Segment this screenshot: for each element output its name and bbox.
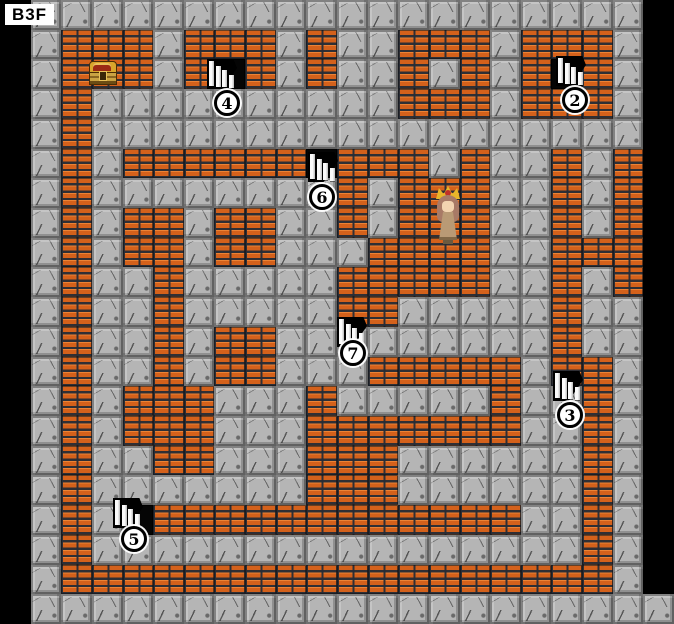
- tile-floor: [429, 297, 460, 327]
- tile-floor: [460, 446, 491, 476]
- tile-floor: [31, 505, 62, 535]
- stair-marker-number: 3: [564, 406, 575, 425]
- tile-floor: [61, 594, 92, 624]
- tile-floor: [276, 30, 307, 60]
- tile-floor: [31, 416, 62, 446]
- tile-floor: [245, 386, 276, 416]
- tile-wall: [582, 565, 613, 595]
- tile-wall: [490, 505, 521, 535]
- tile-wall: [582, 475, 613, 505]
- tile-wall: [245, 208, 276, 238]
- tile-floor: [521, 208, 552, 238]
- tile-wall: [61, 475, 92, 505]
- tile-wall: [398, 178, 429, 208]
- tile-wall: [582, 535, 613, 565]
- tile-floor: [490, 267, 521, 297]
- tile-floor: [582, 208, 613, 238]
- tile-wall: [245, 30, 276, 60]
- tile-wall: [184, 386, 215, 416]
- tile-wall: [184, 505, 215, 535]
- tile-floor: [613, 594, 644, 624]
- tile-floor: [306, 297, 337, 327]
- tile-floor: [31, 30, 62, 60]
- tile-floor: [92, 267, 123, 297]
- tile-floor: [92, 119, 123, 149]
- tile-floor: [306, 238, 337, 268]
- tile-void: [643, 535, 674, 565]
- tile-wall: [92, 30, 123, 60]
- tile-void: [0, 297, 31, 327]
- tile-floor: [337, 535, 368, 565]
- tile-floor: [31, 119, 62, 149]
- tile-floor: [582, 327, 613, 357]
- tile-floor: [521, 297, 552, 327]
- tile-wall: [582, 357, 613, 387]
- tile-wall: [123, 238, 154, 268]
- tile-floor: [153, 30, 184, 60]
- tile-floor: [31, 149, 62, 179]
- stair-marker-3[interactable]: 3: [557, 402, 583, 428]
- stairs-2-icon[interactable]: [556, 56, 586, 86]
- tile-floor: [490, 30, 521, 60]
- tile-wall: [460, 30, 491, 60]
- tile-wall: [490, 386, 521, 416]
- tile-wall: [337, 416, 368, 446]
- tile-floor: [490, 475, 521, 505]
- tile-wall: [582, 416, 613, 446]
- tile-floor: [214, 297, 245, 327]
- tile-floor: [31, 535, 62, 565]
- tile-floor: [429, 149, 460, 179]
- tile-floor: [214, 475, 245, 505]
- tile-wall: [61, 89, 92, 119]
- tile-floor: [31, 238, 62, 268]
- stair-marker-number: 4: [221, 94, 232, 113]
- tile-floor: [92, 357, 123, 387]
- tile-wall: [368, 446, 399, 476]
- tile-floor: [184, 119, 215, 149]
- tile-wall: [398, 505, 429, 535]
- tile-floor: [92, 594, 123, 624]
- tile-floor: [61, 0, 92, 30]
- tile-wall: [245, 149, 276, 179]
- tile-wall: [582, 446, 613, 476]
- stair-marker-7[interactable]: 7: [340, 340, 366, 366]
- tile-wall: [61, 357, 92, 387]
- stair-marker-4[interactable]: 4: [214, 90, 240, 116]
- tile-floor: [613, 327, 644, 357]
- tile-floor: [490, 238, 521, 268]
- tile-void: [0, 30, 31, 60]
- tile-floor: [337, 89, 368, 119]
- tile-floor: [368, 0, 399, 30]
- tile-floor: [306, 267, 337, 297]
- tile-floor: [276, 446, 307, 476]
- tile-void: [643, 327, 674, 357]
- tile-floor: [582, 0, 613, 30]
- tile-wall: [551, 208, 582, 238]
- tile-wall: [337, 178, 368, 208]
- tile-wall: [490, 357, 521, 387]
- tile-void: [0, 357, 31, 387]
- tile-floor: [184, 178, 215, 208]
- tile-wall: [123, 30, 154, 60]
- tile-wall: [368, 297, 399, 327]
- tile-wall: [153, 386, 184, 416]
- tile-floor: [368, 119, 399, 149]
- tile-wall: [398, 565, 429, 595]
- tile-wall: [276, 505, 307, 535]
- tile-wall: [551, 30, 582, 60]
- tile-floor: [184, 238, 215, 268]
- tile-floor: [214, 535, 245, 565]
- tile-wall: [337, 267, 368, 297]
- tile-floor: [521, 327, 552, 357]
- tile-floor: [460, 535, 491, 565]
- tile-floor: [460, 119, 491, 149]
- tile-floor: [276, 416, 307, 446]
- tile-void: [0, 238, 31, 268]
- tile-floor: [521, 535, 552, 565]
- tile-floor: [551, 446, 582, 476]
- tile-wall: [551, 149, 582, 179]
- tile-floor: [460, 327, 491, 357]
- tile-floor: [582, 297, 613, 327]
- tile-void: [0, 208, 31, 238]
- tile-floor: [551, 594, 582, 624]
- tile-wall: [460, 416, 491, 446]
- tile-floor: [521, 386, 552, 416]
- tile-wall: [551, 178, 582, 208]
- tile-floor: [551, 535, 582, 565]
- tile-floor: [551, 119, 582, 149]
- tile-floor: [214, 267, 245, 297]
- tile-wall: [368, 505, 399, 535]
- tile-wall: [245, 327, 276, 357]
- tile-void: [643, 297, 674, 327]
- tile-floor: [123, 119, 154, 149]
- tile-wall: [153, 327, 184, 357]
- tile-floor: [490, 535, 521, 565]
- tile-void: [0, 535, 31, 565]
- tile-void: [0, 446, 31, 476]
- tile-floor: [92, 89, 123, 119]
- tile-wall: [613, 208, 644, 238]
- tile-wall: [490, 416, 521, 446]
- tile-floor: [123, 267, 154, 297]
- tile-floor: [214, 386, 245, 416]
- tile-wall: [613, 267, 644, 297]
- tile-floor: [276, 297, 307, 327]
- stair-marker-5[interactable]: 5: [121, 526, 147, 552]
- tile-wall: [153, 357, 184, 387]
- tile-floor: [184, 0, 215, 30]
- tile-floor: [429, 475, 460, 505]
- tile-wall: [245, 565, 276, 595]
- stair-marker-2[interactable]: 2: [562, 87, 588, 113]
- tile-floor: [245, 0, 276, 30]
- tile-wall: [398, 416, 429, 446]
- tile-wall: [184, 416, 215, 446]
- tile-floor: [92, 208, 123, 238]
- tile-floor: [613, 386, 644, 416]
- treasure-chest-icon[interactable]: [89, 61, 117, 85]
- tile-wall: [337, 446, 368, 476]
- tile-floor: [460, 386, 491, 416]
- tile-wall: [61, 386, 92, 416]
- tile-floor: [31, 327, 62, 357]
- tile-wall: [521, 30, 552, 60]
- tile-void: [643, 30, 674, 60]
- tile-wall: [551, 238, 582, 268]
- tile-wall: [61, 297, 92, 327]
- tile-floor: [521, 238, 552, 268]
- tile-void: [643, 416, 674, 446]
- tile-floor: [521, 178, 552, 208]
- tile-floor: [245, 267, 276, 297]
- tile-floor: [276, 178, 307, 208]
- tile-wall: [460, 89, 491, 119]
- tile-floor: [521, 594, 552, 624]
- tile-floor: [214, 0, 245, 30]
- tile-floor: [184, 535, 215, 565]
- tile-wall: [61, 149, 92, 179]
- tile-floor: [460, 594, 491, 624]
- tile-wall: [337, 208, 368, 238]
- tile-wall: [245, 505, 276, 535]
- stairs-6-icon[interactable]: [308, 152, 338, 182]
- tile-floor: [276, 386, 307, 416]
- tile-floor: [123, 0, 154, 30]
- tile-wall: [368, 267, 399, 297]
- tile-void: [643, 59, 674, 89]
- tile-wall: [306, 30, 337, 60]
- tile-floor: [551, 0, 582, 30]
- tile-floor: [613, 297, 644, 327]
- tile-floor: [31, 59, 62, 89]
- tile-floor: [153, 89, 184, 119]
- tile-wall: [61, 416, 92, 446]
- tile-wall: [61, 267, 92, 297]
- tile-wall: [337, 475, 368, 505]
- tile-wall: [429, 30, 460, 60]
- tile-floor: [214, 446, 245, 476]
- tile-void: [643, 178, 674, 208]
- tile-wall: [368, 416, 399, 446]
- tile-floor: [368, 594, 399, 624]
- stairs-4-icon[interactable]: [207, 59, 237, 89]
- tile-floor: [276, 0, 307, 30]
- tile-floor: [490, 208, 521, 238]
- tile-void: [643, 565, 674, 595]
- tile-wall: [153, 238, 184, 268]
- tile-floor: [368, 30, 399, 60]
- tile-floor: [613, 416, 644, 446]
- tile-floor: [368, 535, 399, 565]
- tile-floor: [123, 297, 154, 327]
- tile-void: [0, 59, 31, 89]
- tile-wall: [613, 238, 644, 268]
- tile-wall: [460, 59, 491, 89]
- tile-floor: [31, 297, 62, 327]
- tile-floor: [490, 149, 521, 179]
- tile-floor: [214, 178, 245, 208]
- tile-wall: [123, 208, 154, 238]
- tile-floor: [368, 386, 399, 416]
- stair-marker-6[interactable]: 6: [309, 184, 335, 210]
- tile-wall: [429, 357, 460, 387]
- tile-floor: [398, 594, 429, 624]
- tile-wall: [276, 149, 307, 179]
- tile-void: [643, 386, 674, 416]
- tile-wall: [306, 565, 337, 595]
- tile-wall: [582, 30, 613, 60]
- tile-floor: [429, 327, 460, 357]
- tile-floor: [429, 0, 460, 30]
- tile-floor: [551, 505, 582, 535]
- tile-floor: [31, 594, 62, 624]
- tile-floor: [368, 59, 399, 89]
- tile-wall: [398, 30, 429, 60]
- tile-floor: [398, 386, 429, 416]
- tile-floor: [123, 594, 154, 624]
- tile-floor: [245, 297, 276, 327]
- tile-floor: [123, 357, 154, 387]
- tile-wall: [61, 446, 92, 476]
- stairs-5-icon[interactable]: [113, 498, 143, 528]
- tile-floor: [214, 594, 245, 624]
- tile-floor: [429, 119, 460, 149]
- tile-floor: [306, 89, 337, 119]
- tile-floor: [153, 594, 184, 624]
- tile-floor: [398, 119, 429, 149]
- tile-void: [0, 267, 31, 297]
- tile-wall: [460, 178, 491, 208]
- tile-wall: [490, 565, 521, 595]
- stair-marker-number: 7: [347, 344, 358, 363]
- tile-floor: [521, 446, 552, 476]
- stair-marker-number: 5: [128, 530, 139, 549]
- tile-wall: [123, 565, 154, 595]
- tile-void: [0, 89, 31, 119]
- tile-wall: [460, 149, 491, 179]
- tile-floor: [245, 416, 276, 446]
- tile-floor: [184, 297, 215, 327]
- tile-floor: [245, 535, 276, 565]
- tile-wall: [521, 59, 552, 89]
- tile-void: [643, 238, 674, 268]
- tile-void: [643, 357, 674, 387]
- tile-floor: [123, 89, 154, 119]
- tile-wall: [398, 89, 429, 119]
- tile-floor: [429, 59, 460, 89]
- tile-wall: [460, 357, 491, 387]
- tile-floor: [153, 0, 184, 30]
- tile-floor: [123, 178, 154, 208]
- tile-void: [0, 327, 31, 357]
- tile-void: [0, 149, 31, 179]
- tile-floor: [490, 327, 521, 357]
- tile-wall: [184, 149, 215, 179]
- tile-floor: [337, 59, 368, 89]
- tile-floor: [184, 475, 215, 505]
- tile-floor: [123, 327, 154, 357]
- tile-floor: [490, 89, 521, 119]
- dungeon-map-screen: B3F 426735: [0, 0, 674, 624]
- tile-wall: [153, 505, 184, 535]
- tile-floor: [337, 594, 368, 624]
- tile-floor: [31, 357, 62, 387]
- tile-floor: [92, 297, 123, 327]
- tile-wall: [582, 505, 613, 535]
- tile-wall: [306, 446, 337, 476]
- tile-floor: [153, 178, 184, 208]
- tile-wall: [337, 149, 368, 179]
- tile-floor: [92, 149, 123, 179]
- tile-floor: [184, 208, 215, 238]
- tile-wall: [429, 416, 460, 446]
- tile-void: [643, 208, 674, 238]
- tile-wall: [276, 565, 307, 595]
- tile-floor: [31, 386, 62, 416]
- tile-wall: [551, 565, 582, 595]
- tile-void: [643, 149, 674, 179]
- tile-floor: [306, 119, 337, 149]
- tile-wall: [521, 565, 552, 595]
- princess-character-sprite[interactable]: [434, 186, 462, 246]
- tile-wall: [153, 416, 184, 446]
- tile-void: [643, 0, 674, 30]
- tile-wall: [337, 565, 368, 595]
- tile-floor: [276, 208, 307, 238]
- tile-floor: [429, 535, 460, 565]
- tile-floor: [582, 149, 613, 179]
- tile-wall: [368, 475, 399, 505]
- tile-wall: [460, 505, 491, 535]
- tile-floor: [460, 297, 491, 327]
- tile-wall: [214, 208, 245, 238]
- tile-wall: [306, 505, 337, 535]
- tile-floor: [398, 0, 429, 30]
- tile-void: [0, 475, 31, 505]
- tile-wall: [61, 505, 92, 535]
- stairs-3-icon[interactable]: [553, 371, 583, 401]
- tile-floor: [184, 327, 215, 357]
- tile-wall: [368, 149, 399, 179]
- tile-wall: [153, 267, 184, 297]
- floor-label: B3F: [5, 4, 54, 25]
- tile-wall: [61, 208, 92, 238]
- tile-floor: [306, 535, 337, 565]
- tile-floor: [276, 535, 307, 565]
- tile-wall: [613, 149, 644, 179]
- tile-wall: [368, 357, 399, 387]
- tile-floor: [245, 446, 276, 476]
- tile-floor: [613, 475, 644, 505]
- tile-wall: [214, 327, 245, 357]
- tile-wall: [551, 297, 582, 327]
- tile-floor: [460, 475, 491, 505]
- tile-wall: [245, 59, 276, 89]
- tile-floor: [153, 59, 184, 89]
- tile-floor: [490, 59, 521, 89]
- tile-floor: [92, 446, 123, 476]
- tile-void: [643, 267, 674, 297]
- tile-void: [0, 119, 31, 149]
- tile-wall: [582, 386, 613, 416]
- tile-wall: [61, 119, 92, 149]
- tile-wall: [61, 327, 92, 357]
